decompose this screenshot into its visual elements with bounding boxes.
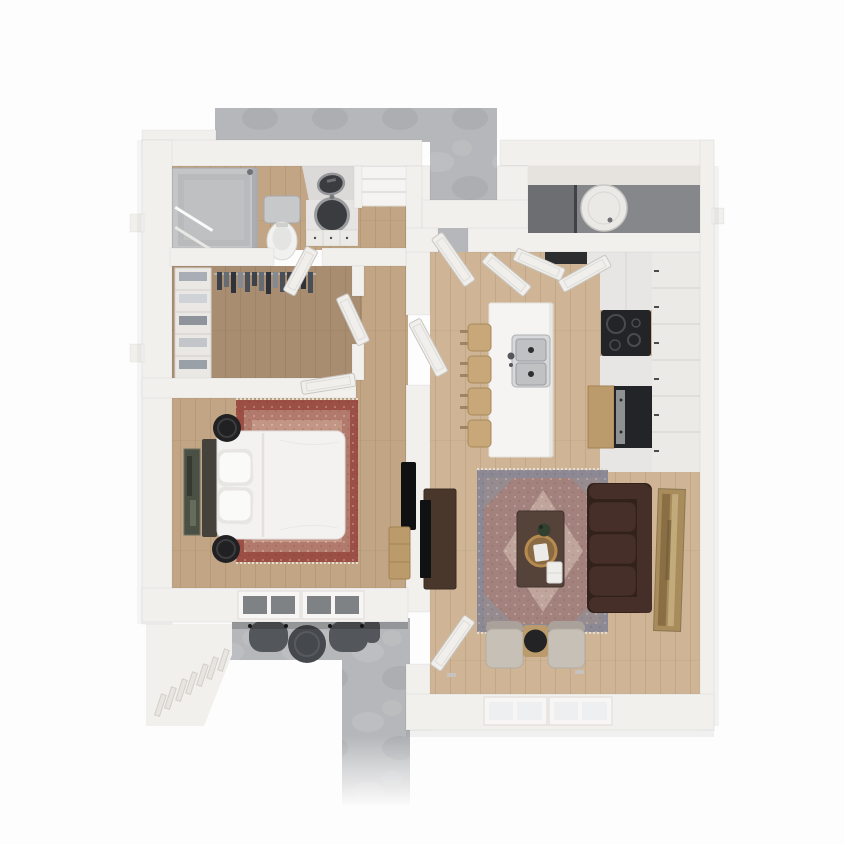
- shower-glass-panel: [252, 168, 258, 252]
- side-table: [523, 625, 548, 657]
- wall-shadow-on-patio: [232, 622, 408, 629]
- bar-stool: [468, 420, 491, 447]
- kitchen-island: [489, 303, 553, 457]
- bar-stool: [468, 324, 491, 351]
- potted-plant: [538, 524, 551, 537]
- bathroom-south-wall-left: [170, 248, 274, 266]
- outer-shadow-bottom: [406, 730, 714, 737]
- vanity: [302, 166, 358, 246]
- tall-wood-cabinet: [588, 386, 614, 448]
- closet-shelving-unit: [175, 268, 211, 380]
- accent-chair-left: [486, 621, 523, 668]
- headboard: [202, 439, 217, 537]
- floorplan-render: [0, 0, 844, 844]
- cooktop: [601, 310, 651, 356]
- bedroom-artwork: [184, 449, 200, 535]
- sofa-backrest: [637, 487, 652, 613]
- sofa-cushion: [589, 502, 636, 532]
- bedroom-dresser: [389, 527, 410, 579]
- outer-wall-top-left: [142, 140, 422, 166]
- bedroom-window-right: [302, 591, 364, 619]
- utility-closet: [528, 185, 700, 233]
- sofa: [587, 483, 652, 613]
- outer-shadow-left: [137, 140, 142, 624]
- accent-chair-right: [548, 621, 585, 668]
- bar-stool: [468, 388, 491, 415]
- refrigerator: [588, 386, 652, 448]
- island-faucet: [508, 353, 515, 360]
- patio-table: [288, 625, 326, 663]
- coffee-table: [517, 511, 564, 587]
- outer-wall-top-right: [500, 140, 714, 166]
- right-wall-cabinets: [652, 252, 700, 472]
- faucet: [330, 195, 335, 200]
- floorplan-svg: [0, 0, 844, 844]
- living-room-artwork: [654, 489, 686, 632]
- bathroom-south-wall-right: [322, 248, 406, 266]
- side-table-top: [524, 630, 547, 653]
- floor-vent: [447, 673, 456, 677]
- utility-closet-back-wall: [528, 166, 700, 188]
- floor-vent: [575, 670, 584, 674]
- linen-shelves: [360, 166, 410, 206]
- sofa-cushion: [589, 534, 636, 564]
- bedroom-tv: [401, 462, 416, 530]
- vanity-sink: [316, 199, 349, 232]
- shower-head: [247, 169, 253, 175]
- bed: [202, 431, 345, 539]
- living-window-left: [484, 697, 547, 725]
- walk-in-shower: [172, 168, 258, 252]
- sofa-cushion: [589, 566, 636, 596]
- outer-wall-right: [700, 140, 714, 730]
- tray-decor: [533, 543, 549, 562]
- entry-header: [422, 200, 528, 230]
- pillow: [219, 452, 251, 483]
- outer-shadow-right: [714, 166, 719, 726]
- bedroom-window-left: [238, 591, 300, 619]
- pillow: [219, 490, 251, 521]
- living-room-tv: [420, 500, 431, 578]
- toilet-tank: [264, 196, 300, 223]
- closet-east-wall-upper: [352, 266, 364, 296]
- bar-stool: [468, 356, 491, 383]
- bathroom-divider-wall: [354, 166, 362, 208]
- living-window-right: [549, 697, 612, 725]
- rear-walkway-concrete: [342, 656, 410, 808]
